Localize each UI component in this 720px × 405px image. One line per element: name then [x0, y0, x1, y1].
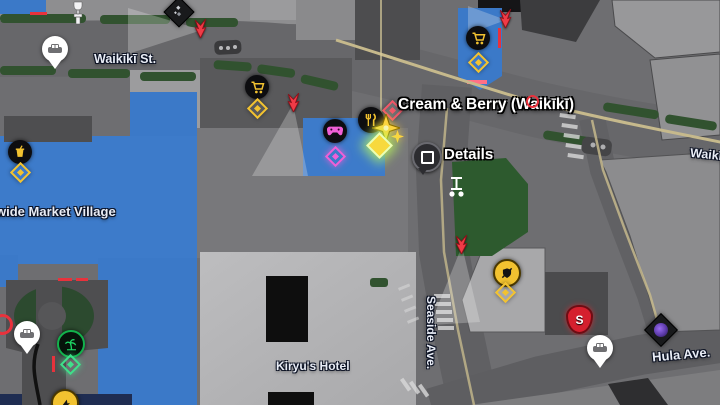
shield-letter: S — [575, 313, 583, 327]
place-label-market-village: wide Market Village — [0, 204, 116, 219]
selected-poi-tooltip: Cream & Berry (Waikīkī) — [398, 96, 574, 114]
drink-icon[interactable] — [8, 140, 32, 164]
enemy-arrow-icon — [452, 233, 471, 254]
car-pin-icon[interactable] — [587, 335, 613, 361]
trophy-icon — [70, 0, 86, 31]
shopping-cart-icon[interactable] — [245, 75, 269, 99]
taxi-pin-icon[interactable] — [42, 36, 68, 62]
details-button[interactable]: Details — [444, 146, 493, 163]
car-pin-icon[interactable] — [14, 321, 40, 347]
square-button-icon[interactable] — [412, 142, 442, 172]
segway-icon — [447, 176, 466, 204]
enemy-arrow-icon — [496, 7, 515, 28]
game-minimap: Waikīkī St. Waikīkī wide Market Village … — [0, 0, 720, 405]
game-controller-icon[interactable] — [323, 119, 347, 143]
enemy-arrow-icon — [191, 17, 210, 38]
enemy-arrow-icon — [284, 91, 303, 112]
street-label-seaside-ave: Seaside Ave. — [424, 296, 438, 369]
street-label-waikiki-st: Waikīkī St. — [94, 52, 156, 66]
red-small-marker — [526, 95, 539, 108]
place-label-kiryus-hotel: Kiryu's Hotel — [276, 359, 350, 373]
shopping-cart-icon[interactable] — [466, 26, 490, 50]
